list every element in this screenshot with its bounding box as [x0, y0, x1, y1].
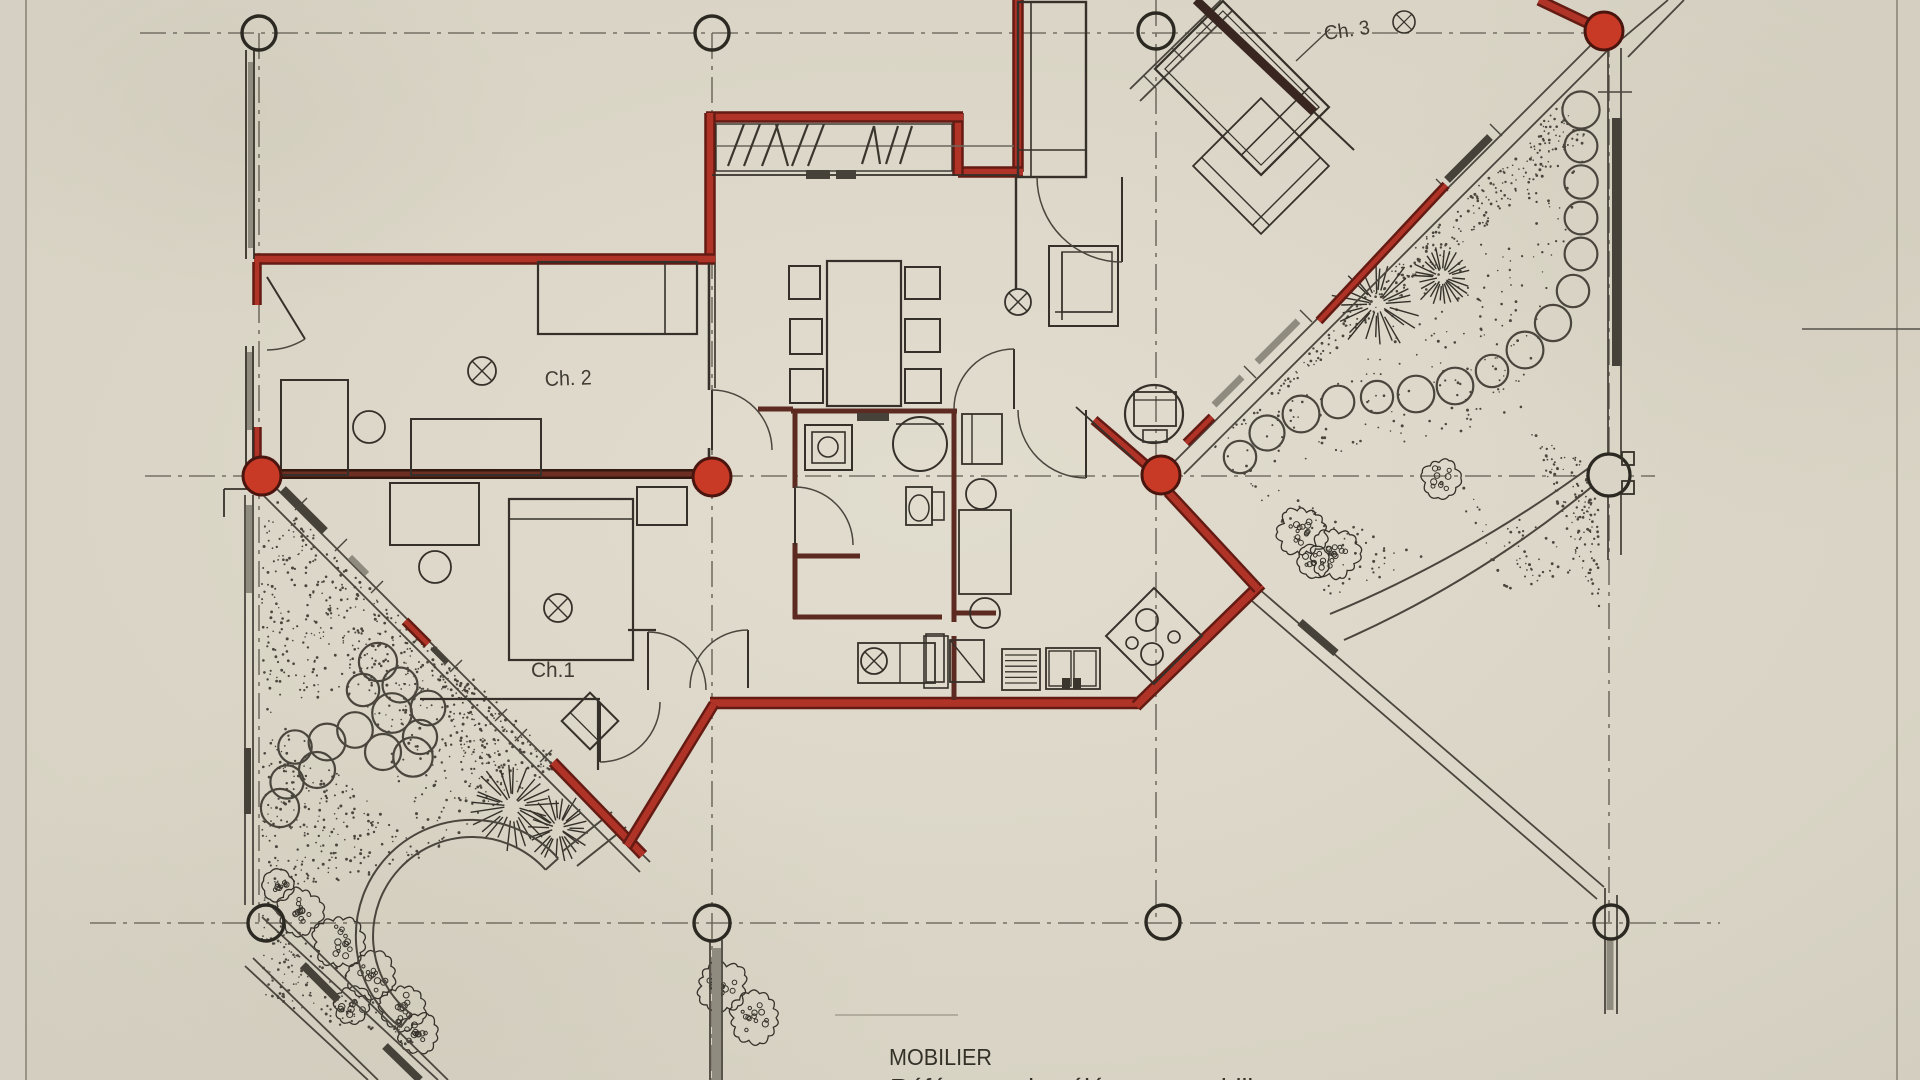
svg-text:Référence des éléments mobilie: Référence des éléments mobiliers — [890, 1073, 1290, 1080]
svg-text:Ch. 2: Ch. 2 — [544, 366, 592, 391]
svg-text:MOBILIER: MOBILIER — [889, 1044, 992, 1070]
svg-text:Ch.1: Ch.1 — [531, 659, 575, 682]
